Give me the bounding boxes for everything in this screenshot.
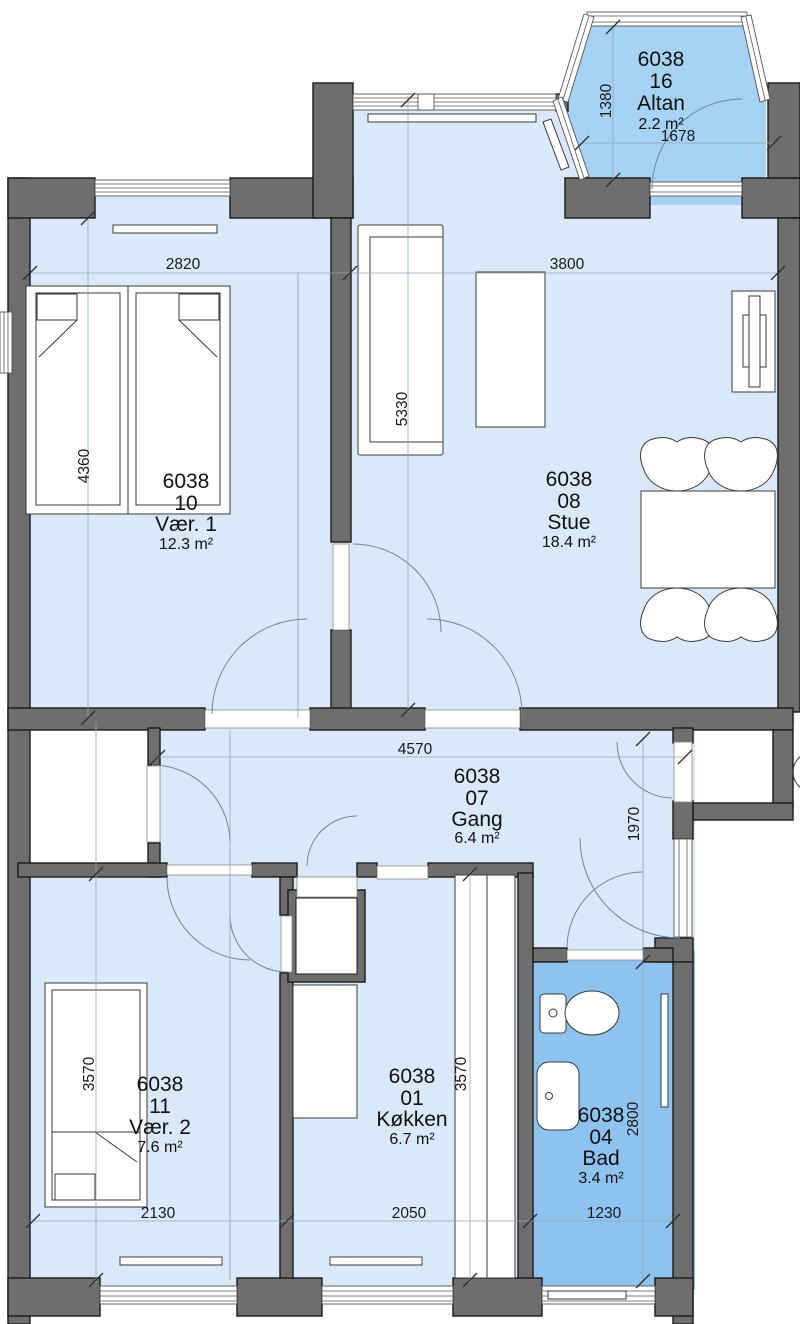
doorway-entrance — [674, 742, 692, 802]
room-label-bad-name: Bad — [582, 1147, 619, 1170]
dim-vaer1-depth: 4360 — [76, 448, 93, 483]
towel-radiator-icon — [661, 994, 668, 1107]
room-label-altan-name: Altan — [637, 92, 685, 115]
tv-bench-icon — [732, 291, 775, 392]
room-label-bad-unit: 6038 — [578, 1104, 625, 1127]
dim-vaer2-depth: 3570 — [81, 1056, 98, 1091]
kitchen-niche — [297, 877, 357, 897]
room-label-koekken-unit: 6038 — [389, 1065, 436, 1088]
room-label-vaer1-name: Vær. 1 — [155, 513, 217, 536]
room-label-koekken-number: 01 — [400, 1087, 423, 1110]
window-koekken-bottom — [322, 1286, 453, 1304]
room-label-stue-name: Stue — [547, 511, 590, 534]
dim-vaer2-width: 2130 — [141, 1205, 176, 1222]
toilet-icon — [540, 991, 619, 1035]
sink-icon — [537, 1062, 579, 1130]
dim-koekken-width: 2050 — [392, 1205, 427, 1222]
kitchen-cabinet-icon — [293, 985, 357, 1118]
dim-bad-depth: 2800 — [625, 1101, 642, 1136]
dim-stue-depth: 5330 — [394, 391, 411, 426]
doorway-stue — [425, 710, 520, 728]
room-label-altan-area: 2.2 m² — [638, 116, 684, 133]
window-vaer1 — [95, 180, 230, 196]
room-label-stue-number: 08 — [557, 490, 580, 513]
doorway-koekken — [377, 866, 428, 879]
room-label-koekken-name: Køkken — [376, 1108, 447, 1131]
room-label-vaer2-number: 11 — [149, 1095, 171, 1118]
dim-gang-width: 4570 — [398, 741, 433, 758]
stairwell-icon — [793, 752, 800, 792]
room-label-vaer2-area: 7.6 m² — [137, 1139, 183, 1156]
doorway-stairwell — [147, 766, 160, 842]
dim-bad-width: 1230 — [587, 1205, 622, 1222]
room-label-bad-area: 3.4 m² — [578, 1170, 624, 1187]
room-label-bad-number: 04 — [589, 1126, 613, 1149]
doorway-bad — [567, 950, 643, 960]
window-vaer1-left — [0, 312, 12, 373]
room-label-koekken-area: 6.7 m² — [389, 1131, 435, 1148]
room-label-altan-unit: 6038 — [638, 48, 685, 71]
dining-set-icon — [641, 438, 778, 642]
dim-entry-depth: 1970 — [626, 806, 643, 841]
duct-shaft-inner — [296, 898, 357, 974]
room-label-altan-number: 16 — [649, 70, 672, 93]
room-label-stue-unit: 6038 — [546, 468, 593, 491]
doorway-vaer1-stue — [333, 544, 349, 630]
floor-plan-drawing: 2820 3800 1678 4570 2130 2050 1230 1380 … — [0, 0, 800, 1324]
room-label-vaer1-unit: 6038 — [163, 470, 210, 493]
room-label-vaer2-name: Vær. 2 — [129, 1116, 191, 1139]
doorway-vaer2-koekken — [281, 916, 292, 972]
dim-altan-depth: 1380 — [598, 83, 615, 118]
doorway-vaer2 — [167, 865, 252, 875]
window-stue — [353, 94, 556, 110]
room-label-gang-number: 07 — [465, 787, 488, 810]
window-entry-nook — [674, 839, 692, 937]
dim-koekken-depth: 3570 — [453, 1056, 470, 1091]
dim-vaer1-width: 2820 — [166, 256, 201, 273]
room-label-vaer1-number: 10 — [174, 492, 197, 515]
room-label-vaer1-area: 12.3 m² — [159, 536, 214, 553]
coffee-table-icon — [476, 272, 545, 427]
room-label-gang-unit: 6038 — [454, 765, 501, 788]
room-label-gang-name: Gang — [451, 808, 502, 831]
room-label-vaer2-unit: 6038 — [137, 1073, 184, 1096]
dining-table-icon — [641, 491, 775, 588]
room-label-gang-area: 6.4 m² — [454, 830, 500, 847]
floor-plan: 2820 3800 1678 4570 2130 2050 1230 1380 … — [0, 0, 800, 1324]
room-label-stue-area: 18.4 m² — [542, 534, 597, 551]
doorway-vaer1 — [205, 710, 310, 728]
dim-stue-width: 3800 — [550, 256, 585, 273]
window-vaer2-bottom — [100, 1286, 237, 1304]
balcony-door — [650, 182, 742, 196]
